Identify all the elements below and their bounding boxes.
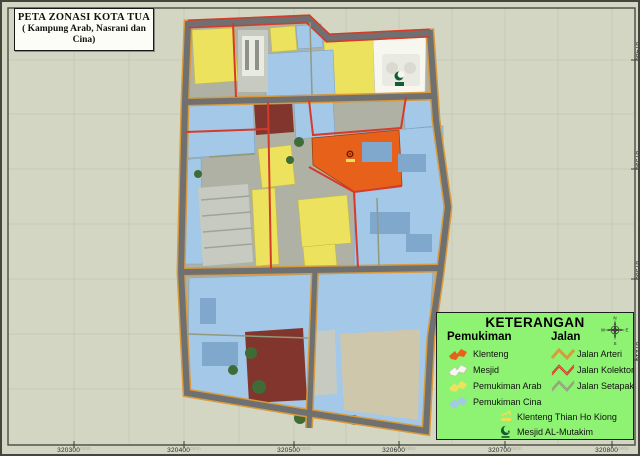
axis-label-easting: 3206000000 [377,446,421,454]
map-title-box: PETA ZONASI KOTA TUA ( Kampung Arab, Nas… [14,8,154,51]
legend-jalan-column: Jalan Jalan Arteri Jalan Kolektor [551,331,635,394]
axis-label-easting: 3208000000 [590,446,634,454]
axis-label-easting: 3204000000 [162,446,206,454]
svg-text:N: N [613,316,616,321]
legend-item-pemukiman-cina: Pemukiman Cina [447,394,547,410]
jalan-arteri-line-icon [551,348,577,360]
jalan-setapak-line-icon [551,380,577,392]
axis-label-easting: 3207000000 [483,446,527,454]
legend-box: KETERANGAN N E S W Pemukiman [436,312,634,440]
pemukiman-cina-swatch-icon [447,396,473,409]
pemukiman-arab-swatch-icon [447,380,473,393]
temple-symbol-icon [499,410,517,423]
axis-label-northing: 873900000 [634,151,640,181]
legend-jalan-heading: Jalan [551,331,635,343]
legend-item-klenteng: Klenteng [447,346,547,362]
mesjid-swatch-icon [447,364,473,377]
jalan-kolektor-line-icon [551,364,577,376]
legend-item-klenteng-thian-ho-kiong: Klenteng Thian Ho Kiong [437,409,633,424]
axis-label-northing: 874800000 [634,42,640,72]
axis-label-easting: 3205000000 [272,446,316,454]
legend-item-mesjid: Mesjid [447,362,547,378]
crescent-symbol-icon [499,425,517,439]
axis-label-easting: 3203000000 [52,446,96,454]
legend-item-jalan-setapak: Jalan Setapak [551,378,635,394]
legend-item-jalan-kolektor: Jalan Kolektor [551,362,635,378]
axis-label-northing: 873000000 [634,261,640,291]
legend-item-pemukiman-arab: Pemukiman Arab [447,378,547,394]
legend-item-mesjid-al-mutakim: Mesjid AL-Mutakim [437,424,633,439]
axis-label-northing: 872100000 [634,342,640,372]
map-subtitle: ( Kampung Arab, Nasrani dan Cina) [17,24,151,46]
legend-item-jalan-arteri: Jalan Arteri [551,346,635,362]
legend-pemukiman-column: Pemukiman Klenteng Mesjid [447,331,547,410]
map-sheet: PETA ZONASI KOTA TUA ( Kampung Arab, Nas… [0,0,640,456]
legend-symbols: Klenteng Thian Ho Kiong Mesjid AL-Mutaki… [437,409,633,439]
map-title: PETA ZONASI KOTA TUA [17,12,151,24]
klenteng-swatch-icon [447,348,473,361]
legend-pemukiman-heading: Pemukiman [447,331,547,343]
